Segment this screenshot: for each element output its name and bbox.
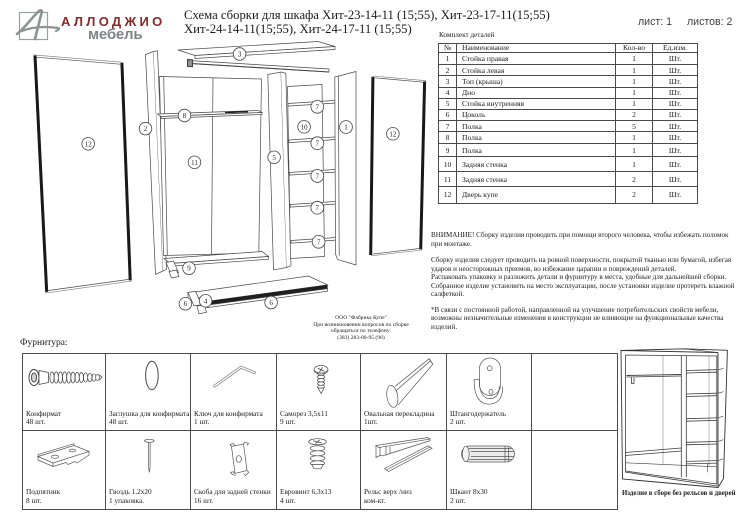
- svg-text:12: 12: [389, 130, 397, 138]
- svg-text:7: 7: [316, 172, 320, 180]
- svg-text:6: 6: [184, 300, 188, 308]
- svg-text:7: 7: [316, 204, 320, 212]
- svg-text:11: 11: [191, 159, 198, 167]
- svg-text:12: 12: [85, 140, 93, 148]
- svg-text:6: 6: [269, 299, 273, 307]
- svg-text:8: 8: [183, 112, 187, 120]
- svg-text:7: 7: [316, 103, 320, 111]
- svg-text:7: 7: [316, 140, 320, 148]
- svg-text:9: 9: [187, 265, 191, 273]
- svg-text:2: 2: [144, 125, 148, 133]
- svg-text:3: 3: [238, 51, 242, 59]
- svg-text:5: 5: [272, 154, 276, 162]
- svg-text:7: 7: [317, 238, 321, 246]
- svg-text:10: 10: [301, 123, 309, 131]
- svg-text:4: 4: [204, 297, 208, 305]
- svg-text:1: 1: [344, 124, 348, 132]
